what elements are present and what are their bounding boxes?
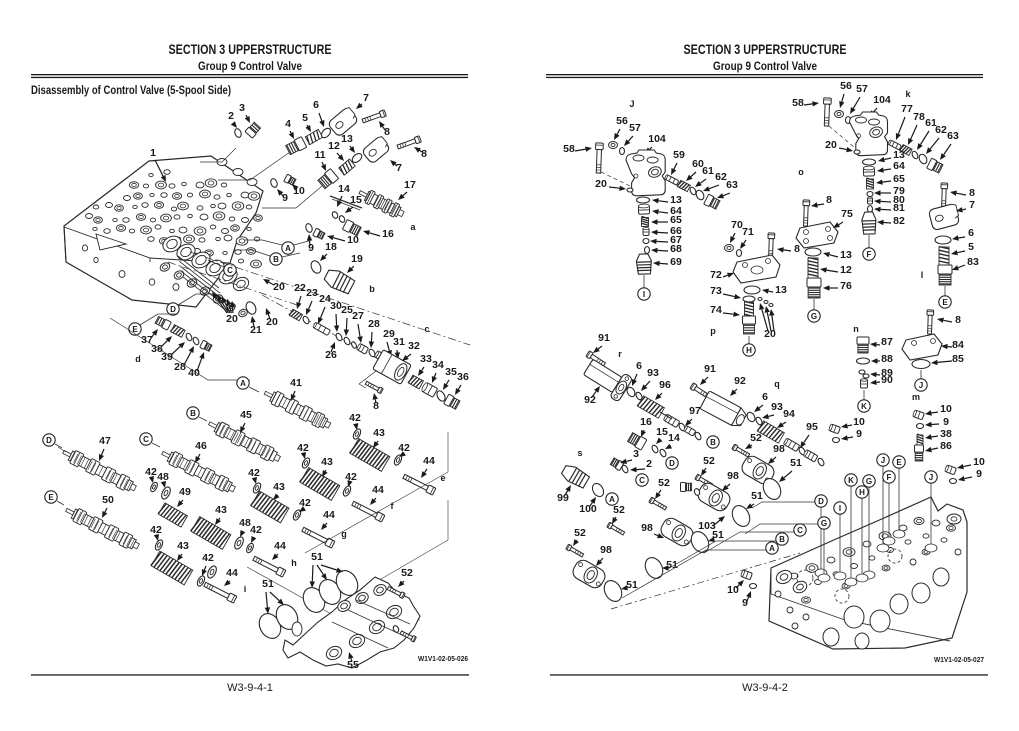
- svg-text:42: 42: [250, 524, 262, 536]
- svg-text:b: b: [369, 284, 375, 294]
- svg-text:8: 8: [794, 243, 800, 255]
- svg-text:46: 46: [195, 440, 207, 452]
- svg-text:95: 95: [806, 421, 818, 433]
- svg-text:28: 28: [174, 361, 186, 373]
- svg-text:63: 63: [726, 179, 738, 191]
- svg-text:44: 44: [226, 567, 238, 579]
- svg-text:32: 32: [408, 340, 420, 352]
- svg-text:20: 20: [226, 313, 238, 325]
- svg-text:20: 20: [595, 178, 607, 190]
- svg-text:9: 9: [976, 468, 982, 480]
- svg-text:91: 91: [598, 332, 610, 344]
- svg-text:6: 6: [762, 391, 768, 403]
- svg-text:17: 17: [404, 179, 416, 191]
- svg-text:20: 20: [266, 316, 278, 328]
- svg-text:71: 71: [742, 226, 754, 238]
- svg-text:97: 97: [689, 405, 701, 417]
- svg-text:d: d: [135, 354, 141, 364]
- svg-text:100: 100: [579, 503, 597, 515]
- svg-text:18: 18: [325, 241, 337, 253]
- svg-text:42: 42: [145, 466, 157, 478]
- svg-text:12: 12: [328, 140, 340, 152]
- svg-text:E: E: [48, 493, 54, 502]
- svg-text:84: 84: [952, 339, 964, 351]
- svg-text:J: J: [881, 456, 885, 465]
- svg-text:50: 50: [102, 494, 114, 506]
- svg-text:43: 43: [373, 427, 385, 439]
- svg-text:10: 10: [940, 403, 952, 415]
- svg-text:52: 52: [658, 477, 670, 489]
- svg-text:B: B: [273, 255, 279, 264]
- svg-text:E: E: [896, 458, 902, 467]
- svg-text:86: 86: [940, 440, 952, 452]
- svg-text:9: 9: [308, 242, 314, 254]
- svg-text:l: l: [921, 270, 924, 280]
- svg-text:15: 15: [350, 194, 362, 206]
- svg-text:F: F: [867, 250, 872, 259]
- svg-text:72: 72: [710, 269, 722, 281]
- svg-text:C: C: [143, 435, 149, 444]
- svg-text:75: 75: [841, 208, 853, 220]
- svg-text:19: 19: [351, 253, 363, 265]
- svg-text:q: q: [774, 379, 780, 389]
- svg-text:i: i: [244, 584, 247, 594]
- svg-text:9: 9: [742, 597, 748, 609]
- svg-text:41: 41: [290, 377, 302, 389]
- svg-text:57: 57: [856, 83, 868, 95]
- svg-text:7: 7: [396, 162, 402, 174]
- svg-text:51: 51: [751, 490, 763, 502]
- svg-text:83: 83: [967, 256, 979, 268]
- svg-text:W1V1-02-05-027: W1V1-02-05-027: [934, 657, 984, 664]
- svg-text:48: 48: [157, 471, 169, 483]
- svg-text:Group 9 Control Valve: Group 9 Control Valve: [198, 61, 302, 73]
- svg-text:92: 92: [584, 394, 596, 406]
- svg-text:93: 93: [647, 367, 659, 379]
- svg-text:I: I: [643, 290, 645, 299]
- svg-text:B: B: [710, 438, 716, 447]
- svg-text:A: A: [285, 244, 291, 253]
- svg-text:38: 38: [940, 428, 952, 440]
- svg-text:8: 8: [421, 148, 427, 160]
- svg-text:21: 21: [250, 324, 262, 336]
- svg-text:9: 9: [282, 192, 288, 204]
- svg-text:78: 78: [913, 111, 925, 123]
- svg-text:K: K: [861, 402, 867, 411]
- svg-text:10: 10: [347, 234, 359, 246]
- svg-text:76: 76: [840, 280, 852, 292]
- svg-text:52: 52: [401, 567, 413, 579]
- svg-text:98: 98: [600, 544, 612, 556]
- svg-text:52: 52: [750, 432, 762, 444]
- svg-text:93: 93: [771, 401, 783, 413]
- svg-text:99: 99: [557, 492, 569, 504]
- svg-text:14: 14: [668, 432, 680, 444]
- svg-text:2: 2: [228, 110, 234, 122]
- svg-text:45: 45: [240, 409, 252, 421]
- svg-text:H: H: [859, 488, 865, 497]
- svg-text:J: J: [919, 381, 923, 390]
- svg-text:62: 62: [935, 124, 947, 136]
- svg-text:44: 44: [372, 484, 384, 496]
- svg-text:A: A: [609, 495, 615, 504]
- svg-text:52: 52: [574, 527, 586, 539]
- svg-text:H: H: [746, 346, 752, 355]
- svg-text:74: 74: [710, 304, 722, 316]
- svg-text:13: 13: [775, 284, 787, 296]
- svg-text:31: 31: [393, 336, 405, 348]
- svg-text:K: K: [848, 476, 854, 485]
- svg-text:51: 51: [626, 579, 638, 591]
- svg-text:43: 43: [177, 540, 189, 552]
- svg-text:91: 91: [704, 363, 716, 375]
- svg-text:55: 55: [347, 659, 359, 671]
- svg-text:A: A: [240, 379, 246, 388]
- svg-text:1: 1: [150, 147, 156, 159]
- svg-text:57: 57: [629, 122, 641, 134]
- svg-text:14: 14: [338, 183, 350, 195]
- svg-text:52: 52: [703, 455, 715, 467]
- svg-text:20: 20: [825, 139, 837, 151]
- svg-text:69: 69: [670, 256, 682, 268]
- svg-text:42: 42: [398, 442, 410, 454]
- svg-text:92: 92: [734, 375, 746, 387]
- svg-text:7: 7: [969, 199, 975, 211]
- svg-text:Disassembly of Control Valve (: Disassembly of Control Valve (5-Spool Si…: [31, 85, 231, 97]
- svg-text:10: 10: [727, 584, 739, 596]
- svg-text:SECTION 3 UPPERSTRUCTURE: SECTION 3 UPPERSTRUCTURE: [169, 41, 332, 57]
- svg-text:33: 33: [420, 353, 432, 365]
- svg-text:51: 51: [262, 578, 274, 590]
- svg-text:h: h: [291, 558, 297, 568]
- svg-text:G: G: [821, 519, 827, 528]
- svg-text:35: 35: [445, 366, 457, 378]
- svg-text:C: C: [797, 526, 803, 535]
- svg-text:16: 16: [640, 416, 652, 428]
- svg-text:88: 88: [881, 353, 893, 365]
- svg-text:42: 42: [297, 442, 309, 454]
- svg-text:42: 42: [248, 467, 260, 479]
- svg-text:I: I: [839, 504, 841, 513]
- svg-text:SECTION 3 UPPERSTRUCTURE: SECTION 3 UPPERSTRUCTURE: [684, 41, 847, 57]
- svg-text:44: 44: [323, 509, 335, 521]
- svg-text:49: 49: [179, 486, 191, 498]
- svg-text:D: D: [46, 436, 52, 445]
- svg-text:13: 13: [341, 133, 353, 145]
- svg-text:J: J: [629, 99, 634, 109]
- svg-text:W3-9-4-2: W3-9-4-2: [742, 682, 788, 694]
- svg-text:D: D: [170, 305, 176, 314]
- svg-text:16: 16: [382, 228, 394, 240]
- svg-text:B: B: [779, 535, 785, 544]
- svg-text:s: s: [577, 448, 582, 458]
- svg-text:73: 73: [710, 285, 722, 297]
- svg-text:36: 36: [457, 371, 469, 383]
- svg-text:94: 94: [783, 408, 795, 420]
- svg-text:96: 96: [659, 379, 671, 391]
- svg-text:28: 28: [368, 318, 380, 330]
- svg-text:6: 6: [968, 227, 974, 239]
- svg-text:n: n: [853, 324, 859, 334]
- svg-text:5: 5: [302, 112, 308, 124]
- svg-text:G: G: [811, 312, 817, 321]
- svg-text:12: 12: [840, 264, 852, 276]
- svg-text:104: 104: [873, 94, 891, 106]
- svg-text:3: 3: [633, 448, 639, 460]
- svg-text:82: 82: [893, 215, 905, 227]
- svg-text:m: m: [912, 392, 920, 402]
- svg-text:A: A: [769, 544, 775, 553]
- svg-text:63: 63: [947, 130, 959, 142]
- svg-text:W1V1-02-05-026: W1V1-02-05-026: [418, 656, 468, 663]
- svg-text:Group 9 Control Valve: Group 9 Control Valve: [713, 61, 817, 73]
- svg-text:D: D: [818, 497, 824, 506]
- svg-text:42: 42: [299, 497, 311, 509]
- svg-text:51: 51: [311, 551, 323, 563]
- svg-text:81: 81: [893, 202, 905, 214]
- svg-text:43: 43: [215, 504, 227, 516]
- svg-text:56: 56: [840, 80, 852, 92]
- svg-text:56: 56: [616, 115, 628, 127]
- svg-text:42: 42: [150, 524, 162, 536]
- svg-text:F: F: [887, 473, 892, 482]
- svg-text:9: 9: [943, 416, 949, 428]
- svg-text:64: 64: [893, 160, 905, 172]
- svg-text:20: 20: [273, 281, 285, 293]
- svg-text:15: 15: [656, 426, 668, 438]
- svg-text:98: 98: [773, 443, 785, 455]
- svg-text:104: 104: [648, 133, 666, 145]
- svg-text:9: 9: [856, 428, 862, 440]
- svg-text:90: 90: [881, 374, 893, 386]
- svg-text:68: 68: [670, 243, 682, 255]
- svg-text:E: E: [942, 298, 948, 307]
- svg-text:5: 5: [968, 241, 974, 253]
- svg-text:8: 8: [955, 314, 961, 326]
- svg-text:43: 43: [273, 481, 285, 493]
- svg-text:87: 87: [881, 336, 893, 348]
- svg-text:61: 61: [702, 165, 714, 177]
- svg-text:3: 3: [239, 102, 245, 114]
- svg-text:6: 6: [313, 99, 319, 111]
- svg-text:39: 39: [161, 351, 173, 363]
- svg-text:g: g: [341, 529, 347, 539]
- svg-text:51: 51: [790, 457, 802, 469]
- svg-text:98: 98: [641, 522, 653, 534]
- svg-text:42: 42: [202, 552, 214, 564]
- svg-text:c: c: [424, 324, 429, 334]
- svg-text:G: G: [866, 477, 872, 486]
- svg-text:6: 6: [636, 360, 642, 372]
- svg-text:r: r: [618, 349, 622, 359]
- svg-text:43: 43: [321, 456, 333, 468]
- svg-text:p: p: [710, 326, 716, 336]
- svg-text:4: 4: [285, 118, 291, 130]
- svg-text:C: C: [227, 266, 233, 275]
- svg-text:8: 8: [384, 126, 390, 138]
- svg-text:2: 2: [646, 458, 652, 470]
- svg-text:11: 11: [314, 149, 325, 161]
- svg-text:8: 8: [826, 194, 832, 206]
- svg-text:58: 58: [792, 97, 804, 109]
- svg-text:D: D: [669, 459, 675, 468]
- svg-text:o: o: [798, 167, 804, 177]
- svg-text:42: 42: [349, 412, 361, 424]
- svg-text:27: 27: [352, 310, 364, 322]
- svg-text:7: 7: [363, 92, 369, 104]
- svg-text:13: 13: [840, 249, 852, 261]
- svg-text:77: 77: [901, 103, 913, 115]
- svg-text:85: 85: [952, 353, 964, 365]
- svg-text:58: 58: [563, 143, 575, 155]
- svg-text:44: 44: [423, 455, 435, 467]
- svg-text:98: 98: [727, 470, 739, 482]
- svg-text:22: 22: [294, 282, 306, 294]
- svg-text:44: 44: [274, 540, 286, 552]
- svg-text:C: C: [639, 476, 645, 485]
- svg-text:65: 65: [893, 173, 905, 185]
- svg-text:34: 34: [432, 359, 444, 371]
- svg-text:8: 8: [969, 187, 975, 199]
- svg-text:23: 23: [306, 287, 318, 299]
- svg-text:10: 10: [853, 416, 865, 428]
- svg-text:59: 59: [673, 149, 685, 161]
- svg-text:W3-9-4-1: W3-9-4-1: [227, 682, 273, 694]
- svg-text:47: 47: [99, 435, 111, 447]
- svg-text:52: 52: [613, 504, 625, 516]
- svg-text:10: 10: [973, 456, 985, 468]
- svg-text:B: B: [190, 409, 196, 418]
- svg-text:J: J: [929, 473, 933, 482]
